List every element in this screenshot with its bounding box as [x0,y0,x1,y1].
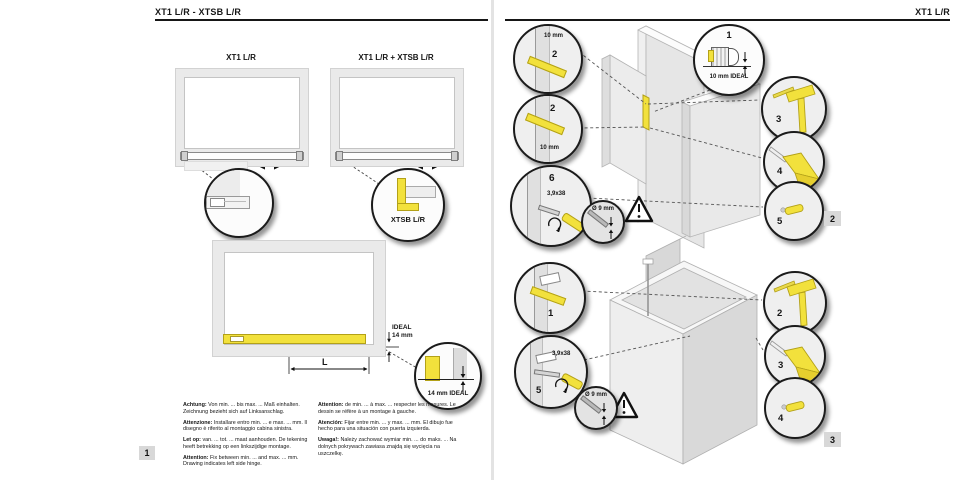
xtsb-detail-circle: XTSB L/R [371,168,445,242]
note-de: Achtung: Von min. ... bis max. ... Maß e… [183,402,311,416]
tool-number: 2 [777,308,782,319]
strip-detail-circle: 1 [514,262,586,334]
step-number-1: 1 [139,446,155,460]
part-tool-circle: 4 [764,377,826,439]
xtsb-label: XTSB L/R [373,215,443,224]
rail-end-cap [181,151,188,161]
small-part-icon [766,183,822,239]
gap-top-detail-circle: 10 mm 2 [513,24,583,94]
door-glass-large [224,252,374,345]
note-pl: Uwaga!: Należy zachować wymiar min. ... … [318,437,460,457]
tool-number: 3 [776,114,781,125]
gap-bottom-detail-circle: 2 10 mm [513,94,583,164]
part-tool-circle: 5 [764,181,824,241]
step-number-3: 3 [824,432,841,447]
dim-10mm: 10 mm [540,145,559,151]
profile-dim: 10 mm IDEAL [695,74,763,80]
tool-number: 5 [777,216,782,227]
part-number: 2 [552,49,557,60]
shower-box-3d [610,236,757,464]
gap-detail-label: 14 mm IDEAL [416,390,480,397]
turn-arrow-icon [552,375,570,393]
figure1-title: XT1 L/R [175,53,307,62]
notes-column-2: Attention: de min. ... à max. ... respec… [318,402,460,461]
manual-spread: XT1 L/R - XTSB L/R XT1 L/R XT1 L/R + XTS… [0,0,980,480]
rail-end-cap [451,151,458,161]
part-number: 1 [695,30,763,41]
part-number: 5 [536,385,541,396]
profile-detail-circle: 1 10 mm IDEAL [693,24,765,96]
tool-number: 4 [778,413,783,424]
part-number: 1 [548,308,553,319]
drill-detail-circle: Ø 9 mm [581,200,625,244]
diagram-linework [0,0,980,480]
right-page-header: XT1 L/R [860,7,950,17]
bottom-rail [180,152,304,160]
wall-block [206,170,240,196]
depth-arrows-icon [598,403,610,425]
header-rule-right [505,19,950,21]
hinge-plate [230,336,244,342]
part-number: 6 [549,173,555,184]
tool-number: 4 [777,166,782,177]
depth-arrows-icon [605,217,617,239]
gap-arrows-icon [456,366,470,393]
bracket-mark [643,259,653,264]
door-glass [339,77,455,149]
rail-detail-circle [204,168,274,238]
gasket-icon [728,48,739,66]
wall-profile-strip [643,95,649,130]
note-nl: Let op: van. ... tot. ... maat aanhouden… [183,437,311,451]
figure2-title: XT1 L/R + XTSB L/R [330,53,462,62]
page-fold [491,0,494,480]
xtsb-profile-bar [223,334,366,344]
ideal-line1: IDEAL [392,324,413,332]
note-es: Atención: Fijar entre min. ... y max. ..… [318,420,460,434]
step-number-2: 2 [824,211,841,226]
note-fr: Attention: de min. ... à max. ... respec… [318,402,460,416]
gap-detail-circle: 14 mm IDEAL [414,342,482,410]
screw-size: 3,9x38 [552,351,570,357]
hammer-icon [765,273,825,333]
tool-number: 3 [778,360,783,371]
screw-detail-circle: 6 3,9x38 [510,165,592,247]
drill-detail-circle: Ø 9 mm [574,386,618,430]
door-glass [184,77,300,149]
part-number: 2 [550,103,555,114]
rail-closeup [404,186,436,198]
rail-plate [210,198,225,207]
ideal-dim-label: IDEAL 14 mm [392,324,413,341]
length-label: L [322,357,328,367]
profile-insert [708,50,714,62]
bottom-rail [335,152,459,160]
ideal-line2: 14 mm [392,332,413,340]
rail-end-cap [296,151,303,161]
small-part-icon [766,379,824,437]
left-page-header: XT1 L/R - XTSB L/R [155,7,241,17]
screw-size: 3,9x38 [547,191,565,197]
gap-arrows-icon [739,52,751,76]
rail-end-cap [336,151,343,161]
header-rule-left [155,19,488,21]
note-en: Attention: Fix between min. ... and max.… [183,455,311,469]
bracket-closeup [425,356,440,381]
notes-column-1: Achtung: Von min. ... bis max. ... Maß e… [183,402,311,472]
rail-line [224,201,246,202]
dim-10mm: 10 mm [544,33,563,39]
turn-arrow-icon [545,214,563,232]
xtsb-bracket-foot [397,203,419,211]
note-it: Attenzione: Installare entro min. ... e … [183,420,311,434]
